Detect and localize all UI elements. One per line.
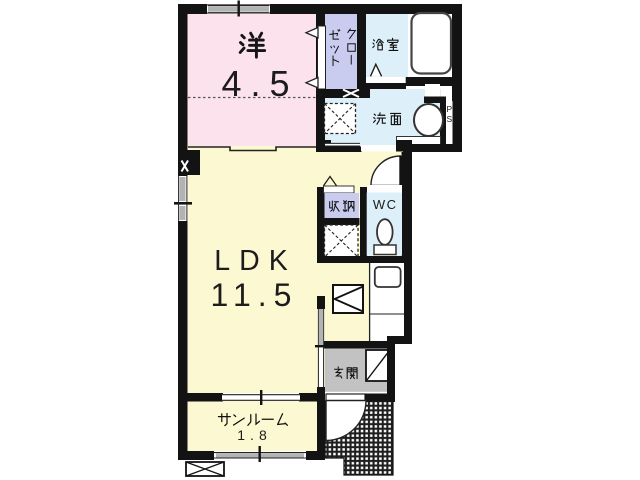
svg-text:4.5: 4.5 — [221, 63, 298, 104]
svg-text:1.8: 1.8 — [237, 427, 271, 443]
svg-text:S: S — [446, 114, 452, 124]
svg-text:WC: WC — [373, 197, 398, 212]
svg-text:11.5: 11.5 — [211, 277, 299, 313]
svg-text:LDK: LDK — [214, 245, 296, 277]
svg-text:P: P — [446, 104, 452, 114]
